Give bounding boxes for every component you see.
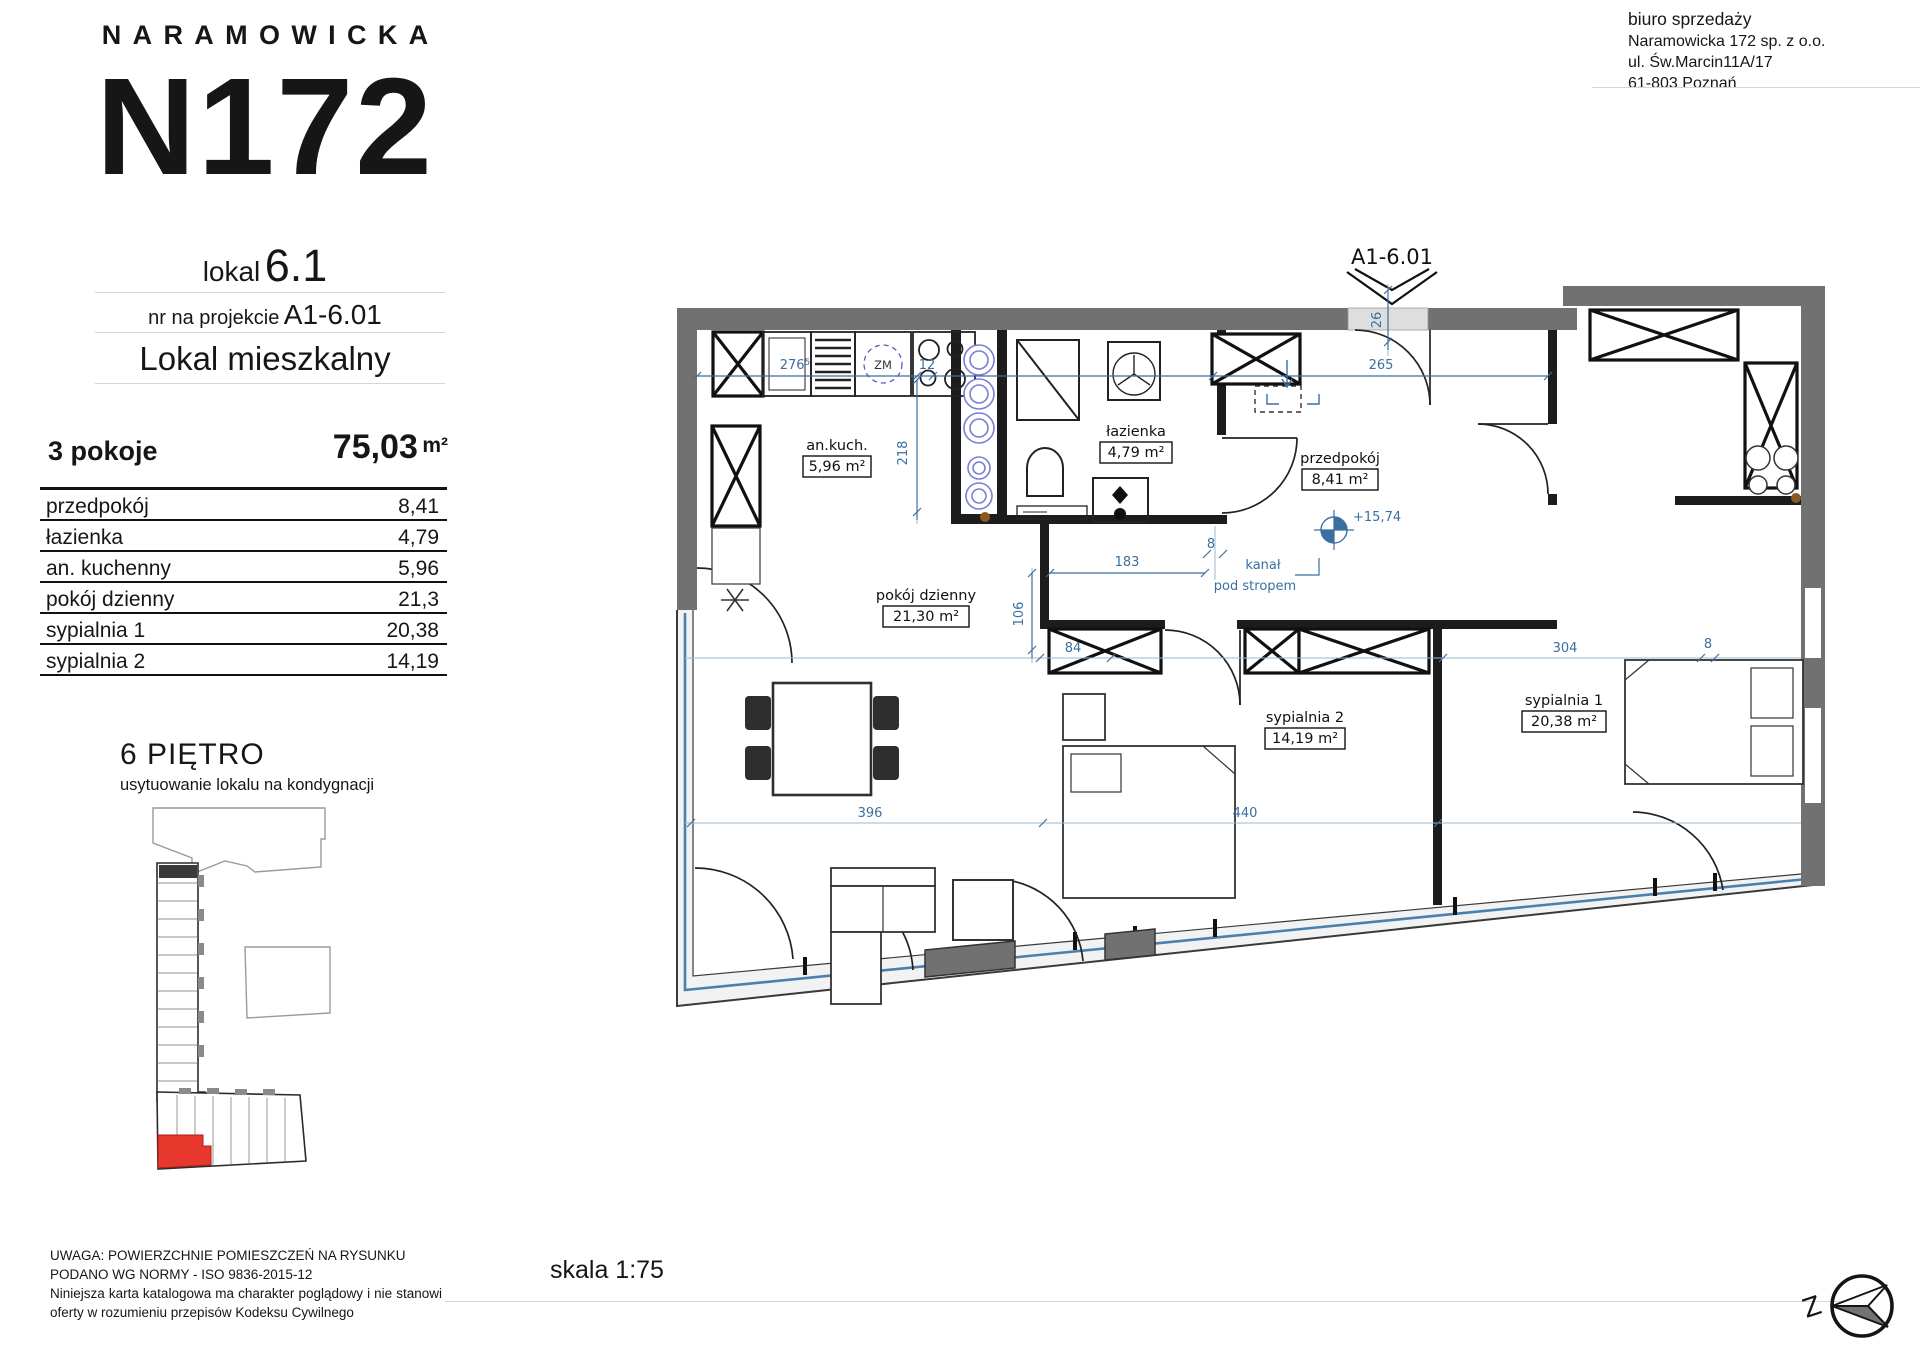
duct-label: pod stropem — [1214, 579, 1296, 594]
closet-valve — [1791, 493, 1801, 503]
room-label: przedpokój — [40, 495, 149, 519]
cabinet-knob — [1114, 508, 1126, 520]
room-area: 4,79 m² — [1108, 445, 1165, 461]
room-name: przedpokój — [1300, 451, 1380, 467]
unit-number-value: 6.1 — [265, 240, 328, 291]
total-area: 75,03 — [333, 428, 418, 466]
facade-pillar — [1105, 929, 1155, 960]
table-row: an. kuchenny 5,96 — [40, 552, 447, 583]
room-value: 5,96 — [398, 557, 447, 581]
disclaimer-paragraph: Niniejsza karta katalogowa ma charakter … — [50, 1284, 442, 1322]
core-block — [159, 865, 197, 878]
unit-number-line: lokal 6.1 — [85, 240, 445, 292]
unit-type: Lokal mieszkalny — [85, 340, 445, 378]
room-area: 8,41 m² — [1312, 472, 1369, 488]
room-area-table: przedpokój 8,41 łazienka 4,79 an. kuchen… — [40, 487, 447, 676]
bedroom2-bed — [1063, 694, 1235, 898]
table-row: sypialnia 2 14,19 — [40, 645, 447, 676]
neighbor-building-outline — [245, 947, 330, 1018]
project-number-line: nr na projekcie A1-6.01 — [85, 299, 445, 331]
office-line: ul. Św.Marcin11A/17 — [1628, 52, 1825, 73]
bedroom1-bed — [1625, 660, 1803, 784]
floor-title: 6 PIĘTRO — [120, 738, 265, 772]
dim-label: 396 — [858, 806, 883, 821]
unit-number-label: lokal — [203, 256, 261, 287]
total-area-unit: m² — [422, 434, 448, 457]
room-area: 14,19 m² — [1272, 731, 1338, 747]
compass-needle-bottom — [1832, 1306, 1888, 1327]
room-label: sypialnia 1 — [40, 619, 145, 643]
table-row: przedpokój 8,41 — [40, 490, 447, 521]
room-area: 5,96 m² — [809, 459, 866, 475]
table-row: sypialnia 1 20,38 — [40, 614, 447, 645]
room-name: sypialnia 1 — [1525, 693, 1603, 709]
disclaimer-line: UWAGA: POWIERZCHNIE POMIESZCZEŃ NA RYSUN… — [50, 1246, 442, 1265]
compass-needle-top — [1832, 1285, 1887, 1306]
disclaimer-line: PODANO WG NORMY - ISO 9836-2015-12 — [50, 1265, 442, 1284]
room-label: łazienka — [40, 526, 123, 550]
west-label: Z — [1799, 1291, 1825, 1325]
room-value: 21,3 — [398, 588, 447, 612]
unit-tag: A1-6.01 — [1351, 245, 1433, 269]
brand-name: NARAMOWICKA — [82, 20, 448, 51]
highlighted-unit — [158, 1135, 211, 1168]
summary-row: 3 pokoje 75,03 m² — [48, 428, 448, 467]
divider — [1592, 87, 1920, 88]
dim-label: 26 — [1370, 312, 1385, 329]
sink-diamond — [1112, 486, 1128, 504]
rooms-count: 3 pokoje — [48, 436, 158, 467]
office-title: biuro sprzedaży — [1628, 8, 1825, 31]
shaft-valve — [980, 512, 990, 522]
dim-label: 2765 — [780, 358, 811, 373]
divider — [95, 383, 445, 384]
scale-label: skala 1:75 — [550, 1256, 664, 1285]
room-area: 21,30 m² — [893, 609, 959, 625]
coffee-table — [953, 880, 1013, 940]
room-label: pokój dzienny — [40, 588, 174, 612]
floor-subtitle: usytuowanie lokalu na kondygnacji — [120, 776, 374, 795]
room-value: 20,38 — [386, 619, 447, 643]
room-value: 14,19 — [386, 650, 447, 674]
dim-label: 265 — [1369, 358, 1394, 373]
divider — [445, 1301, 1858, 1302]
dim-label: 183 — [1115, 555, 1140, 570]
compass: Z — [1790, 1250, 1910, 1358]
floor-location-map — [95, 805, 395, 1200]
dim-label: 84 — [1065, 641, 1082, 656]
hall-dashed-cabinet — [1255, 386, 1301, 412]
room-labels: an.kuch. 5,96 m² łazienka 4,79 m² przedp… — [803, 424, 1606, 749]
project-logo: N172 — [75, 48, 455, 207]
disclaimer: UWAGA: POWIERZCHNIE POMIESZCZEŃ NA RYSUN… — [50, 1246, 442, 1323]
dining-table — [773, 683, 871, 795]
room-name: sypialnia 2 — [1266, 710, 1344, 726]
table-row: łazienka 4,79 — [40, 521, 447, 552]
room-name: pokój dzienny — [876, 588, 977, 604]
level-marker-icon — [1314, 510, 1354, 550]
dim-label: 106 — [1012, 602, 1027, 627]
room-value: 8,41 — [398, 495, 447, 519]
dishwasher-tag: ZM — [874, 358, 892, 372]
room-label: sypialnia 2 — [40, 650, 145, 674]
ventilation-icon — [721, 589, 749, 611]
dim-label: 304 — [1553, 641, 1578, 656]
room-value: 4,79 — [398, 526, 447, 550]
project-number-value: A1-6.01 — [284, 299, 382, 330]
divider — [95, 332, 445, 333]
duct-leader-line — [1295, 558, 1319, 575]
room-name: an.kuch. — [806, 438, 868, 454]
divider — [95, 292, 445, 293]
floor-plan: A1-6.01 — [655, 228, 1855, 1108]
project-number-label: nr na projekcie — [148, 307, 279, 329]
office-line: 61-803 Poznań — [1628, 73, 1825, 94]
room-label: an. kuchenny — [40, 557, 171, 581]
dim-label: 12 — [919, 358, 936, 373]
dim-label: 440 — [1233, 806, 1258, 821]
riser-shaft-fittings — [964, 345, 994, 509]
level-mark: +15,74 — [1353, 510, 1401, 525]
room-name: łazienka — [1106, 424, 1166, 440]
office-line: Naramowicka 172 sp. z o.o. — [1628, 31, 1825, 52]
dim-label: 218 — [896, 441, 911, 466]
table-row: pokój dzienny 21,3 — [40, 583, 447, 614]
building-wing-vertical — [157, 863, 205, 1101]
dim-label: 8 — [1207, 537, 1215, 552]
duct-label: kanał — [1245, 558, 1280, 573]
catalog-card-page: { "header": { "brand": "NARAMOWICKA", "l… — [0, 0, 1920, 1358]
sales-office-block: biuro sprzedaży Naramowicka 172 sp. z o.… — [1628, 8, 1825, 94]
dim-label: 8 — [1704, 637, 1712, 652]
room-area: 20,38 m² — [1531, 714, 1597, 730]
